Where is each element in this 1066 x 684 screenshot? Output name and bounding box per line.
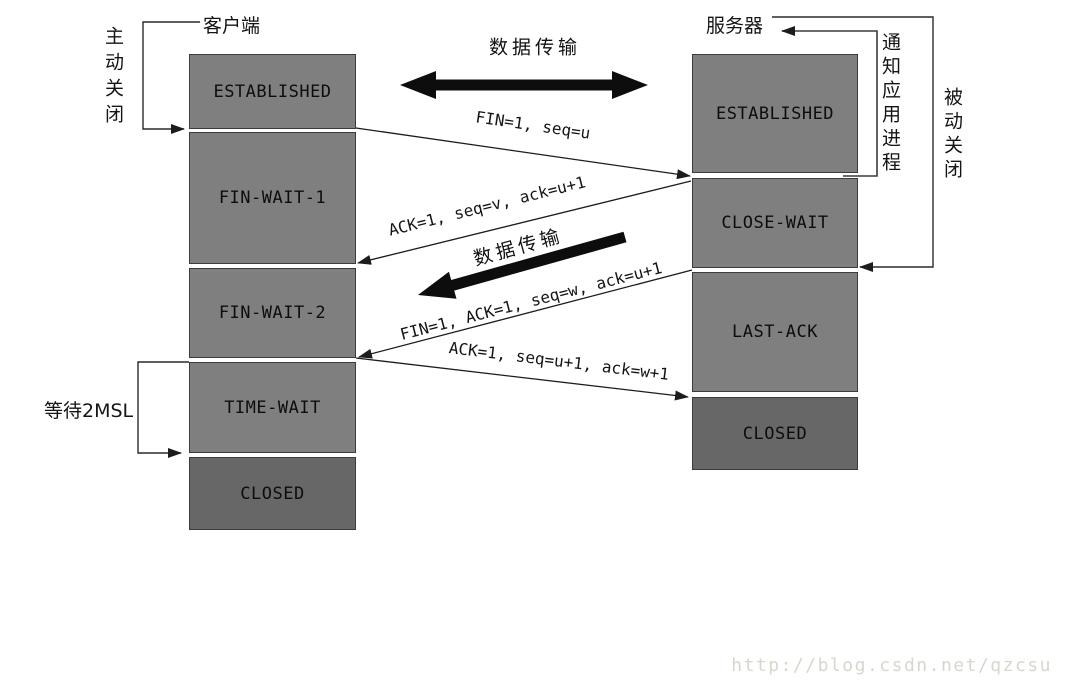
client-state-time-wait: TIME-WAIT [189, 362, 356, 453]
data-transfer-top-label: 数据传输 [489, 33, 581, 60]
wait-2msl-bracket [138, 362, 189, 453]
server-state-close-wait-label: CLOSE-WAIT [721, 213, 828, 233]
server-state-established-label: ESTABLISHED [716, 104, 834, 124]
client-state-closed-label: CLOSED [240, 484, 304, 504]
server-state-closed: CLOSED [692, 397, 858, 470]
msg-fin-ack-seq-w-line [359, 270, 692, 357]
server-state-last-ack-label: LAST-ACK [732, 322, 818, 342]
client-state-established: ESTABLISHED [189, 54, 356, 129]
tcp-release-diagram: 客户端 服务器 主动关闭 被动关闭 通知应用进程 等待2MSL ESTABLIS… [0, 0, 1066, 684]
server-state-close-wait: CLOSE-WAIT [692, 178, 858, 268]
client-state-fin-wait-1-label: FIN-WAIT-1 [219, 188, 326, 208]
wait-2msl-note: 等待2MSL [44, 396, 133, 423]
active-close-note: 主动关闭 [100, 26, 127, 130]
notify-app-note: 通知应用进程 [877, 32, 904, 176]
server-title: 服务器 [706, 11, 763, 38]
client-state-established-label: ESTABLISHED [213, 82, 331, 102]
data-transfer-top-arrow [400, 71, 648, 99]
data-transfer-mid-label: 数据传输 [470, 221, 566, 272]
client-state-fin-wait-1: FIN-WAIT-1 [189, 132, 356, 264]
msg-ack-seq-u1-label: ACK=1, seq=u+1, ack=w+1 [448, 338, 670, 384]
passive-close-note: 被动关闭 [939, 87, 966, 183]
watermark: http://blog.csdn.net/qzcsu [731, 655, 1052, 676]
connector-lines [0, 0, 1066, 684]
server-state-closed-label: CLOSED [743, 424, 807, 444]
msg-fin-seq-u-line [356, 128, 690, 176]
client-state-fin-wait-2-label: FIN-WAIT-2 [219, 303, 326, 323]
client-state-time-wait-label: TIME-WAIT [224, 398, 321, 418]
client-title: 客户端 [203, 11, 260, 38]
server-state-established: ESTABLISHED [692, 54, 858, 173]
server-state-last-ack: LAST-ACK [692, 272, 858, 392]
client-state-fin-wait-2: FIN-WAIT-2 [189, 268, 356, 358]
client-state-closed: CLOSED [189, 457, 356, 530]
msg-fin-seq-u-label: FIN=1, seq=u [474, 107, 591, 142]
msg-fin-ack-seq-w-label: FIN=1, ACK=1, seq=w, ack=u+1 [398, 258, 664, 344]
